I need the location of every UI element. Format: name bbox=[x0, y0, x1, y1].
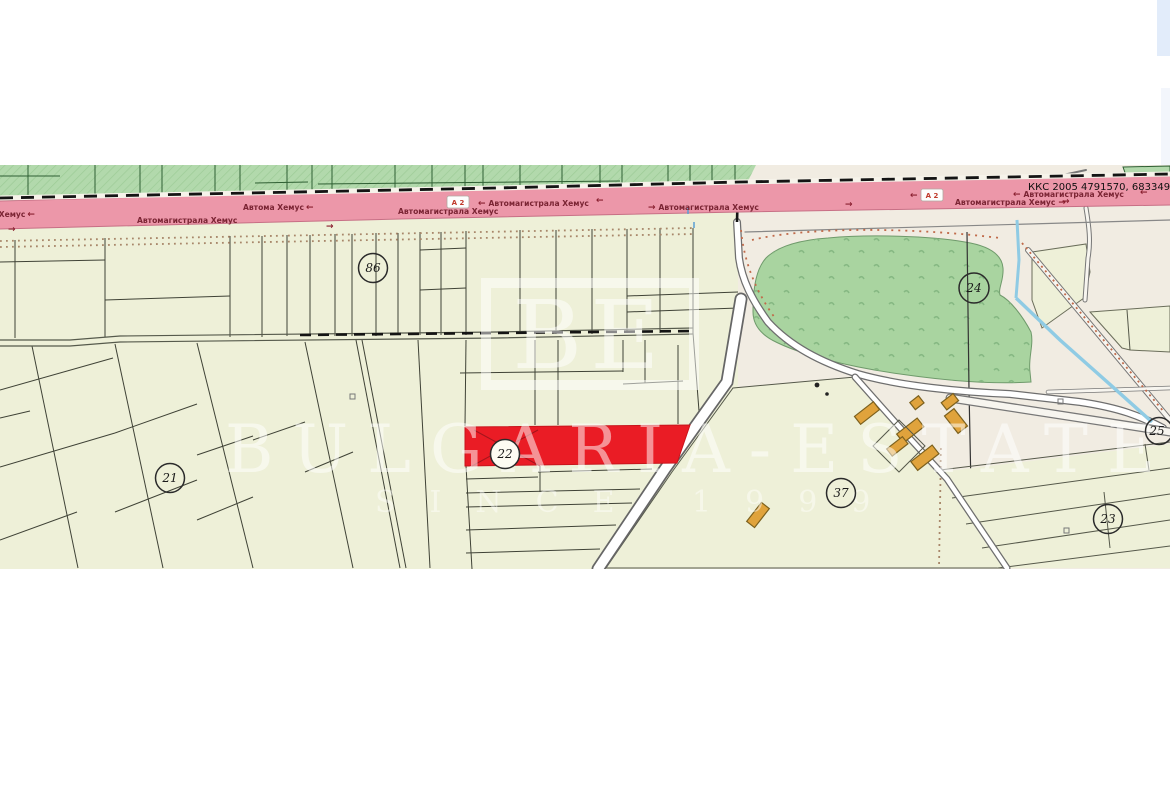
svg-text:А 2: А 2 bbox=[452, 199, 465, 207]
svg-text:Автомагистрала Хемус: Автомагистрала Хемус bbox=[137, 216, 237, 225]
svg-text:←: ← bbox=[1140, 188, 1148, 198]
svg-text:→: → bbox=[845, 200, 853, 210]
route-badge-a2-east: А 2 bbox=[921, 189, 943, 201]
svg-text:←Автомагистрала Хемус: ←Автомагистрала Хемус bbox=[478, 199, 589, 209]
svg-text:←: ← bbox=[596, 196, 604, 206]
svg-text:37: 37 bbox=[833, 486, 849, 500]
svg-text:→: → bbox=[8, 225, 16, 235]
svg-text:→Автомагистрала Хемус: →Автомагистрала Хемус bbox=[648, 203, 759, 213]
svg-text:Автомагистрала Хемус←: Автомагистрала Хемус← bbox=[0, 210, 35, 220]
svg-text:Автома Хемус←: Автома Хемус← bbox=[243, 203, 314, 213]
watermark-tagline: SINCE 1999 bbox=[375, 485, 904, 520]
page: BE BULGARIA-ESTATE SINCE 1999 ККС 2005 4… bbox=[0, 0, 1170, 785]
svg-text:Автомагистрала Хемус→: Автомагистрала Хемус→ bbox=[955, 198, 1066, 208]
parcel-label-22[interactable]: 22 bbox=[491, 440, 520, 469]
svg-text:86: 86 bbox=[365, 261, 381, 275]
svg-text:А 2: А 2 bbox=[926, 192, 939, 200]
route-badge-a2-west: А 2 bbox=[447, 196, 469, 208]
svg-text:21: 21 bbox=[161, 471, 177, 485]
browser-artifact bbox=[1157, 0, 1170, 172]
svg-text:→: → bbox=[1062, 197, 1070, 207]
svg-text:23: 23 bbox=[1099, 512, 1116, 526]
svg-text:24: 24 bbox=[965, 281, 981, 295]
svg-text:←: ← bbox=[910, 191, 918, 201]
svg-text:→: → bbox=[326, 222, 334, 232]
watermark-logo-initials: BE bbox=[512, 281, 667, 391]
watermark-brand: BULGARIA-ESTATE bbox=[225, 411, 1170, 488]
svg-text:22: 22 bbox=[496, 447, 512, 461]
svg-text:25: 25 bbox=[1148, 424, 1164, 438]
cadastral-map[interactable]: BE BULGARIA-ESTATE SINCE 1999 ККС 2005 4… bbox=[0, 0, 1170, 785]
